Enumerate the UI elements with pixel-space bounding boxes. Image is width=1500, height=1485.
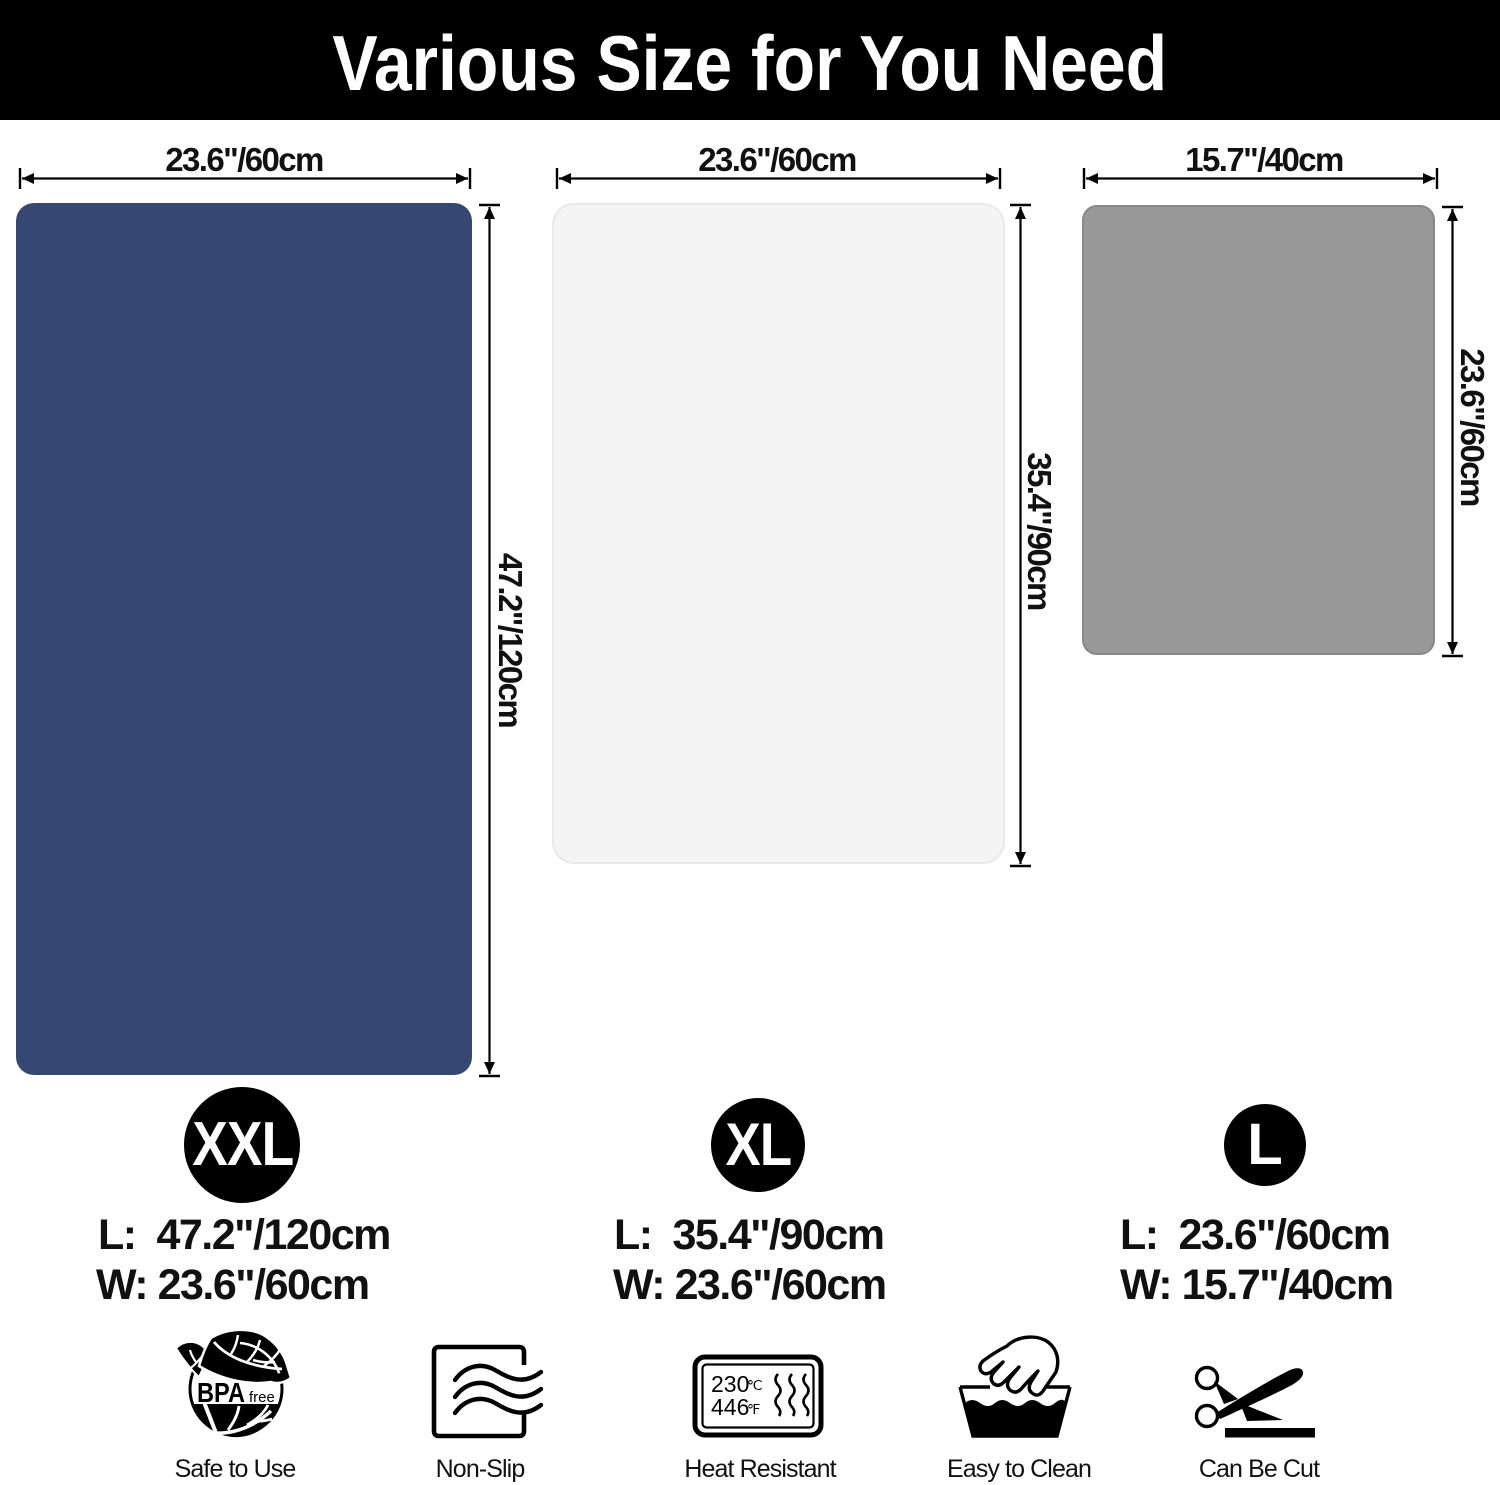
svg-text:free: free [249, 1389, 275, 1406]
svg-text:BPA: BPA [197, 1377, 245, 1408]
svg-text:℃: ℃ [747, 1377, 763, 1393]
svg-text:446: 446 [711, 1394, 749, 1420]
svg-text:℉: ℉ [747, 1401, 760, 1417]
